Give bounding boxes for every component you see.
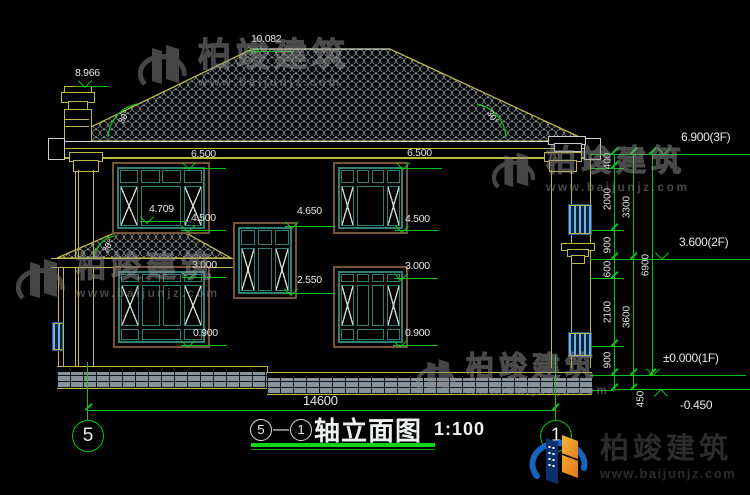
watermark-name: 柏竣建筑	[76, 252, 220, 284]
window-casement	[387, 186, 400, 226]
watermark-mid-left: 柏竣建筑 www.baijunjz.com	[16, 252, 220, 310]
brand-logo-icon	[528, 424, 592, 492]
window-pane	[357, 329, 384, 340]
window-casement	[275, 248, 289, 291]
window-pane	[120, 170, 138, 183]
watermark-logo-icon	[16, 252, 68, 310]
window-casement	[341, 285, 354, 326]
side-window-right-2f	[569, 205, 591, 234]
level-line	[181, 345, 227, 346]
window-pane	[142, 329, 182, 340]
title-scale: 1:100	[434, 419, 485, 440]
brand-name: 柏竣建筑	[600, 435, 736, 464]
window-pane	[258, 230, 272, 245]
level-marker-ground: -0.450	[680, 398, 712, 412]
watermark-logo-icon	[492, 146, 538, 198]
dim-3600: 3600	[622, 306, 633, 328]
watermark-url: www.baijunjz.com	[466, 383, 610, 397]
casement-x-icon	[388, 286, 399, 325]
watermark-url: www.baijunjz.com	[546, 180, 690, 194]
level-marker-1f-sill-right: 0.900	[405, 327, 430, 339]
title-underline-thin	[251, 449, 435, 450]
level-marker-porch-ridge: 4.709	[149, 203, 174, 215]
brick-plinth-left	[57, 372, 268, 389]
casement-x-icon	[121, 187, 137, 225]
level-line	[285, 226, 335, 227]
window-pane	[341, 329, 354, 340]
level-marker-1f-sill-left: 0.900	[193, 327, 218, 339]
level-line	[140, 221, 188, 222]
title-axis-start-bubble: 5	[250, 419, 272, 441]
window-pane	[184, 170, 202, 183]
right-corbel-step3	[571, 255, 585, 264]
level-marker-1f: ±0.000(1F)	[663, 351, 719, 365]
window-transom-row	[119, 169, 203, 185]
level-line	[396, 168, 442, 169]
level-marker-2f-sill-right: 4.500	[405, 213, 430, 225]
level-line-ground	[614, 389, 750, 390]
window-pane	[241, 230, 255, 245]
watermark-url: www.baijunjz.com	[198, 75, 350, 89]
title-axis-end-bubble: 1	[290, 419, 312, 441]
casement-x-icon	[276, 249, 288, 290]
level-marker-2f-sill-left: 4.500	[191, 212, 216, 224]
window-transom-row	[340, 169, 401, 185]
watermark-bottom-center: 柏竣建筑 www.baijunjz.com	[416, 352, 610, 402]
window-pane	[275, 230, 289, 245]
axis-bubble-5: 5	[72, 420, 104, 452]
level-line	[394, 278, 438, 279]
window-casement	[341, 186, 354, 226]
title-underline-thick	[251, 443, 435, 447]
window-main-row	[340, 283, 401, 327]
window-pane-pair	[356, 169, 386, 185]
elevation-drawing-canvas: 30° 30° 30°	[0, 0, 750, 495]
window-main-row	[340, 185, 401, 227]
watermark-logo-icon	[138, 38, 190, 96]
level-line	[182, 168, 226, 169]
dim-2100: 2100	[603, 301, 614, 323]
brand-logo: 柏竣建筑 www.baijunjz.com	[528, 424, 736, 492]
dim-600: 600	[603, 261, 614, 278]
watermark-name: 柏竣建筑	[466, 352, 610, 381]
extension-line	[590, 230, 624, 231]
axis-line-5	[87, 362, 88, 420]
cornice-end-left	[48, 138, 65, 160]
casement-x-icon	[388, 187, 399, 225]
window-pane	[341, 170, 354, 183]
watermark-name: 柏竣建筑	[546, 146, 690, 178]
level-line-2f	[614, 259, 750, 260]
right-pilaster-edge	[551, 170, 552, 368]
dim-900-upper: 900	[603, 237, 614, 254]
window-pane	[341, 274, 354, 281]
window-frame	[238, 227, 292, 294]
window-casement	[120, 186, 138, 226]
level-line	[393, 345, 438, 346]
window-main-row	[240, 247, 290, 292]
extension-line	[590, 346, 624, 347]
window-casement	[241, 248, 255, 291]
casement-x-icon	[242, 249, 254, 290]
level-marker-eave-left: 6.500	[191, 148, 216, 160]
window-casement	[387, 285, 400, 326]
window-fixed-pane	[258, 248, 272, 291]
window-pane-pair	[356, 273, 386, 283]
dim-3300: 3300	[622, 196, 633, 218]
window-pane-pair	[139, 169, 182, 185]
window-frame	[338, 271, 403, 343]
side-window-left-1f	[53, 323, 62, 350]
watermark-url: www.baijunjz.com	[76, 286, 220, 300]
overall-width-dim: 14600	[303, 393, 338, 408]
chimney-band-line	[65, 119, 89, 120]
level-marker-2f: 3.600(2F)	[679, 235, 728, 249]
watermark-logo-icon	[416, 352, 458, 402]
watermark-name: 柏竣建筑	[198, 38, 350, 73]
level-marker-stair-sill: 2.550	[297, 274, 322, 286]
window-door-pair	[356, 283, 386, 327]
left-capital-lower	[73, 160, 99, 172]
dim-6900: 6900	[641, 254, 652, 276]
watermark-top-center: 柏竣建筑 www.baijunjz.com	[138, 38, 350, 96]
window-frame	[338, 167, 403, 229]
level-marker-1f-head-right: 3.000	[405, 260, 430, 272]
level-marker-stair-top: 4.650	[297, 205, 322, 217]
window-pane	[121, 329, 138, 340]
window-pane	[387, 170, 400, 183]
casement-x-icon	[342, 187, 353, 225]
window-transom-row	[240, 229, 290, 247]
extension-line	[590, 278, 624, 279]
level-line-1f	[614, 375, 746, 376]
level-line	[76, 86, 108, 87]
window-transom-row	[340, 273, 401, 283]
level-marker-eave-right: 6.500	[407, 147, 432, 159]
title-axis-separator: —	[273, 421, 289, 439]
window-fixed-pane	[357, 186, 384, 226]
casement-x-icon	[342, 286, 353, 325]
brand-url: www.baijunjz.com	[600, 466, 736, 481]
window-bottom-row	[340, 327, 401, 341]
level-line	[395, 230, 439, 231]
level-line	[181, 230, 226, 231]
level-line	[284, 293, 334, 294]
watermark-top-right: 柏竣建筑 www.baijunjz.com	[492, 146, 690, 198]
level-marker-3f: 6.900(3F)	[681, 130, 730, 144]
dim-450: 450	[636, 391, 647, 408]
chimney-band-line	[65, 126, 89, 127]
